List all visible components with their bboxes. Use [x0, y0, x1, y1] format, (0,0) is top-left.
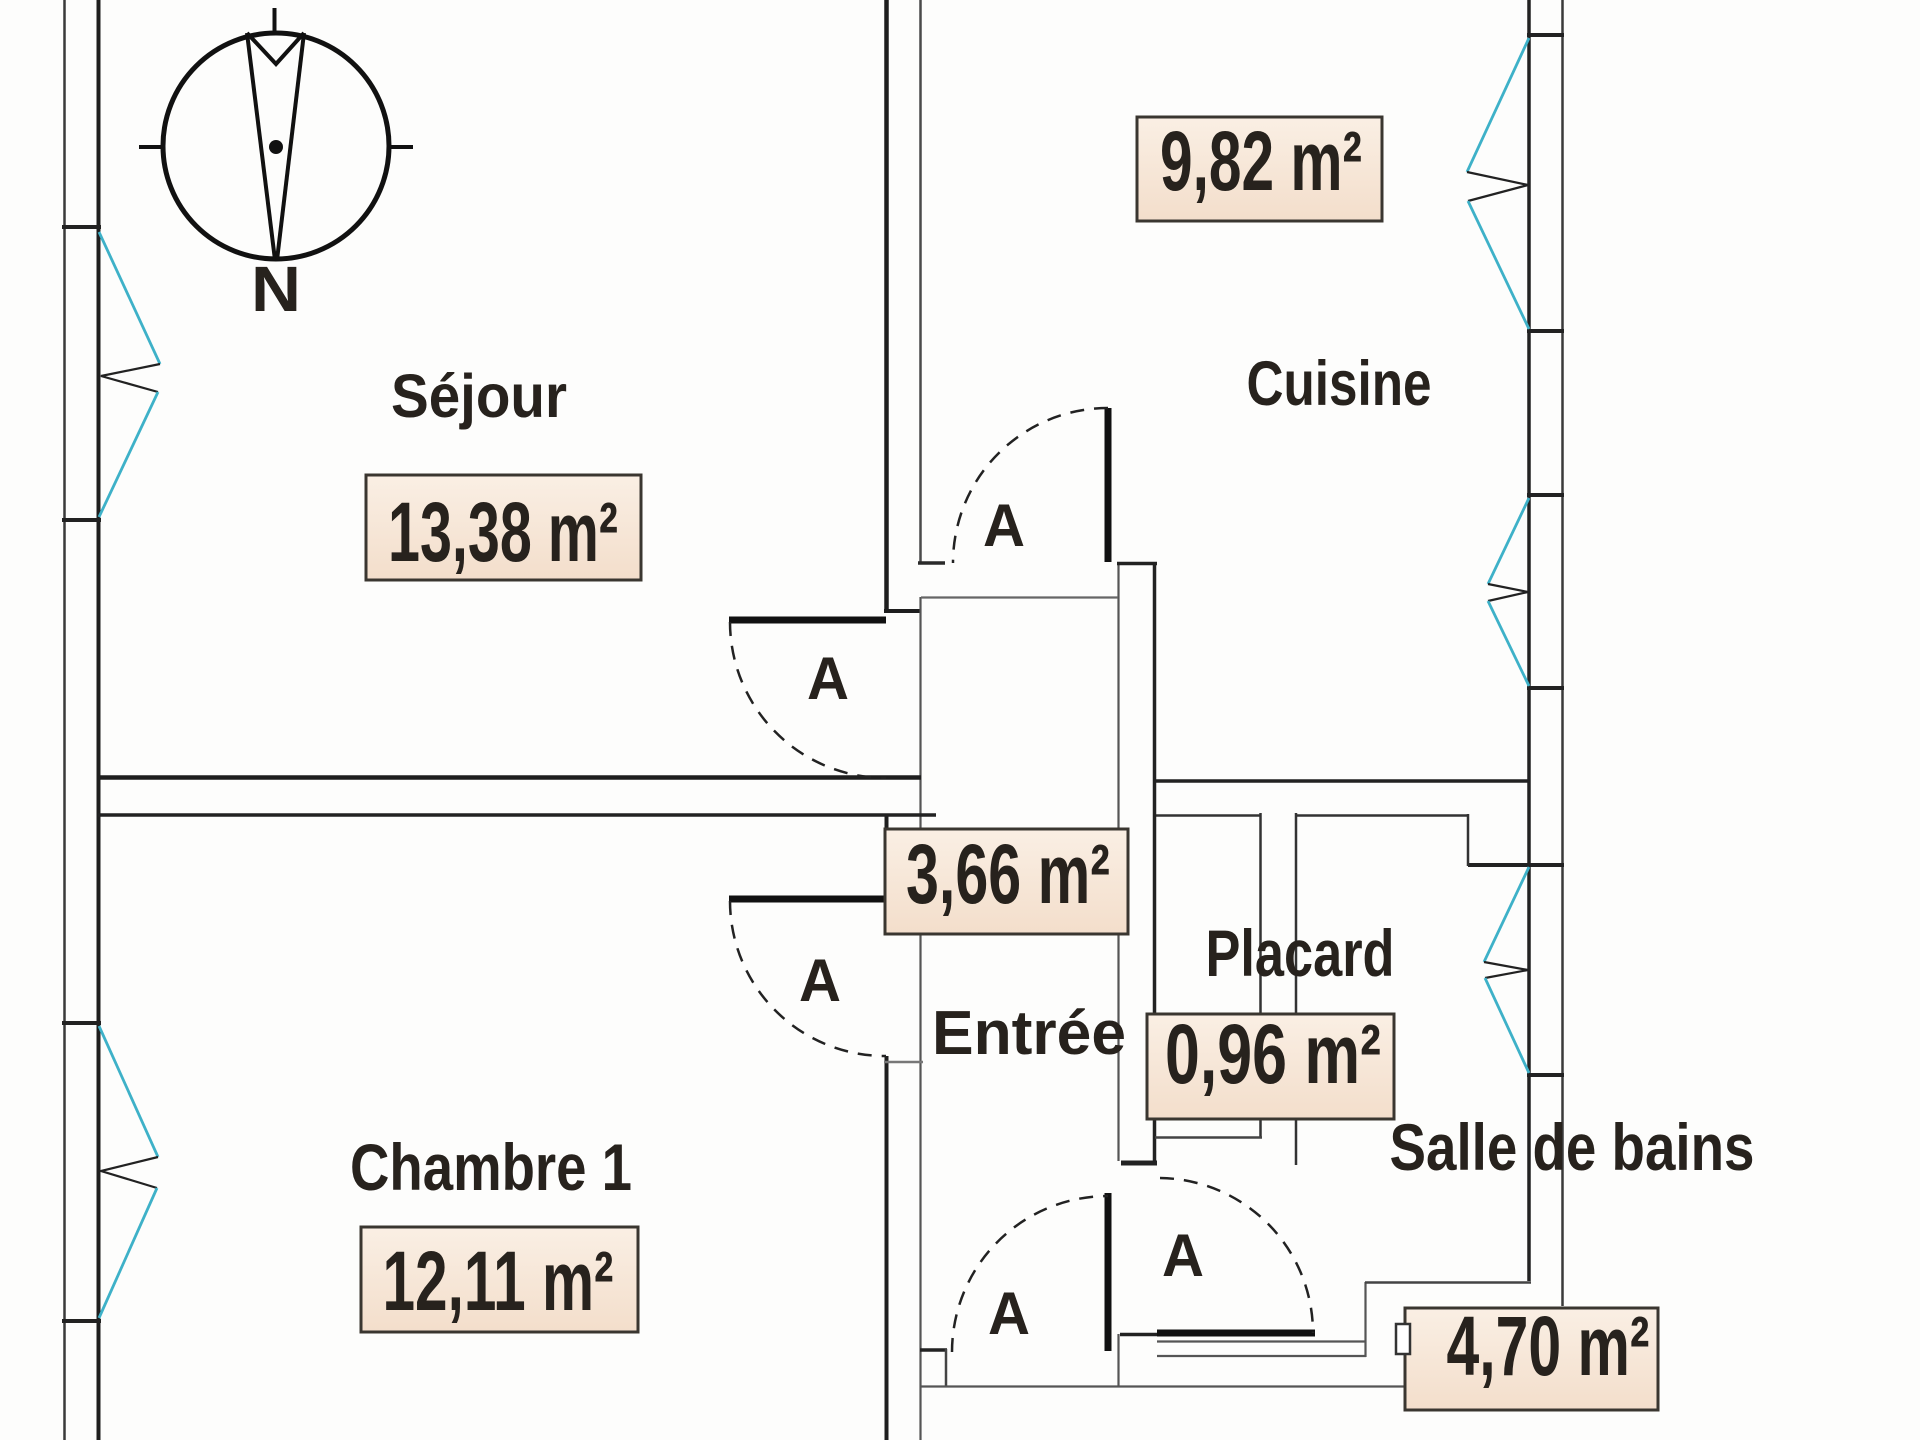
svg-text:Salle de bains: Salle de bains	[1390, 1110, 1755, 1184]
svg-text:N: N	[251, 253, 301, 325]
svg-text:4,70 m²: 4,70 m²	[1447, 1299, 1650, 1393]
svg-text:12,11 m²: 12,11 m²	[383, 1234, 614, 1328]
svg-text:9,82 m²: 9,82 m²	[1160, 114, 1362, 208]
svg-text:A: A	[1162, 1222, 1204, 1289]
svg-text:13,38 m²: 13,38 m²	[388, 485, 618, 579]
svg-text:A: A	[988, 1280, 1030, 1347]
svg-text:0,96 m²: 0,96 m²	[1165, 1007, 1381, 1101]
svg-text:A: A	[799, 947, 841, 1014]
svg-text:Chambre 1: Chambre 1	[350, 1130, 632, 1204]
svg-text:Entrée: Entrée	[932, 999, 1126, 1068]
svg-text:3,66 m²: 3,66 m²	[906, 827, 1110, 921]
svg-text:Placard: Placard	[1206, 916, 1395, 990]
svg-text:A: A	[983, 492, 1025, 559]
svg-text:Cuisine: Cuisine	[1247, 349, 1432, 419]
svg-text:Séjour: Séjour	[391, 362, 567, 430]
svg-text:A: A	[807, 645, 849, 712]
